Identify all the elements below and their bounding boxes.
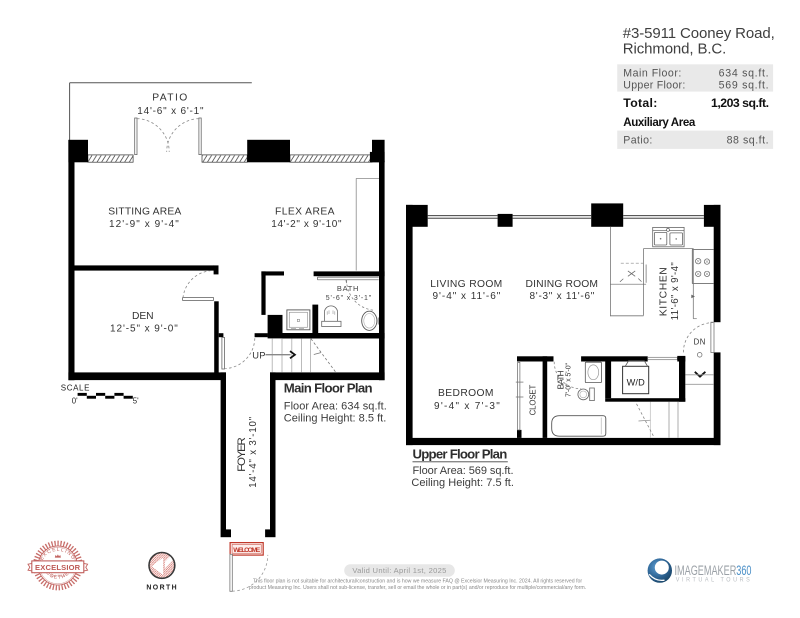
- svg-text:PATIO: PATIO: [152, 93, 188, 104]
- svg-text:SITTING AREA: SITTING AREA: [108, 207, 182, 218]
- svg-text:8'-3" x 11'-6": 8'-3" x 11'-6": [530, 291, 595, 302]
- svg-text:DEN: DEN: [132, 311, 154, 322]
- svg-text:WELCOME: WELCOME: [233, 547, 261, 554]
- svg-text:#3-5911 Cooney Road,: #3-5911 Cooney Road,: [623, 25, 775, 42]
- svg-text:SCALE: SCALE: [61, 384, 90, 393]
- svg-text:14'-2" x 9'-10": 14'-2" x 9'-10": [271, 219, 342, 230]
- svg-text:11'-6" x 9'-4": 11'-6" x 9'-4": [670, 262, 681, 321]
- svg-text:Richmond, B.C.: Richmond, B.C.: [623, 41, 727, 58]
- svg-text:product Measuring Inc. Users s: product Measuring Inc. Users shall not s…: [249, 585, 586, 591]
- svg-text:Floor Area: 634 sq.ft.: Floor Area: 634 sq.ft.: [284, 400, 387, 412]
- svg-text:9'-4" x 7'-3": 9'-4" x 7'-3": [434, 401, 500, 412]
- svg-text:Floor Area: 569 sq.ft.: Floor Area: 569 sq.ft.: [413, 465, 514, 477]
- svg-text:14'-6" x 6'-1": 14'-6" x 6'-1": [137, 106, 204, 117]
- svg-text:KITCHEN: KITCHEN: [659, 266, 670, 316]
- svg-text:1,203 sq.ft.: 1,203 sq.ft.: [711, 96, 769, 110]
- svg-text:Main Floor:: Main Floor:: [623, 67, 681, 79]
- svg-text:14'-4" x 3'-10": 14'-4" x 3'-10": [248, 416, 259, 488]
- svg-text:LIVING ROOM: LIVING ROOM: [430, 279, 503, 290]
- svg-text:DINING ROOM: DINING ROOM: [526, 279, 599, 290]
- svg-text:5': 5': [133, 396, 139, 405]
- svg-text:FLEX AREA: FLEX AREA: [275, 207, 335, 218]
- svg-text:5'-6" x 3'-1": 5'-6" x 3'-1": [326, 295, 372, 302]
- svg-text:0': 0': [72, 397, 78, 406]
- svg-text:Patio:: Patio:: [623, 134, 652, 146]
- svg-text:DN: DN: [694, 338, 706, 347]
- svg-text:Upper Floor:: Upper Floor:: [623, 79, 685, 91]
- svg-text:EXCELSIOR: EXCELSIOR: [35, 563, 81, 572]
- svg-text:NORTH: NORTH: [146, 585, 177, 592]
- svg-text:88 sq.ft.: 88 sq.ft.: [727, 134, 769, 146]
- svg-text:FOYER: FOYER: [236, 436, 248, 472]
- svg-text:BATH: BATH: [556, 370, 566, 390]
- svg-text:VIRTUAL TOURS: VIRTUAL TOURS: [676, 576, 753, 583]
- svg-text:BATH: BATH: [337, 284, 359, 293]
- svg-text:12'-5" x 9'-0": 12'-5" x 9'-0": [110, 324, 178, 335]
- svg-text:CLOSET: CLOSET: [528, 384, 537, 416]
- svg-text:7'-0" x 5'-0": 7'-0" x 5'-0": [565, 362, 572, 397]
- svg-text:EXCELLING: EXCELLING: [39, 547, 77, 562]
- svg-text:Upper Floor Plan: Upper Floor Plan: [413, 446, 508, 461]
- svg-text:UP: UP: [252, 350, 266, 360]
- svg-text:569 sq.ft.: 569 sq.ft.: [719, 79, 769, 91]
- svg-text:Ceiling Height: 7.5 ft.: Ceiling Height: 7.5 ft.: [411, 477, 514, 489]
- svg-text:Main Floor Plan: Main Floor Plan: [284, 380, 373, 395]
- svg-text:Ceiling Height: 8.5 ft.: Ceiling Height: 8.5 ft.: [284, 413, 387, 425]
- svg-text:Valid Until: April 1st, 2025: Valid Until: April 1st, 2025: [352, 566, 446, 575]
- svg-text:Total:: Total:: [623, 96, 657, 110]
- svg-text:· Est. 1918 ·: · Est. 1918 ·: [49, 574, 66, 578]
- svg-text:12'-9" x 9'-4": 12'-9" x 9'-4": [109, 219, 179, 230]
- svg-text:This floor plan is not suitabl: This floor plan is not suitable for arch…: [253, 578, 583, 584]
- svg-text:W/D: W/D: [627, 377, 646, 387]
- svg-text:BEDROOM: BEDROOM: [438, 388, 494, 399]
- svg-text:9'-4" x 11'-6": 9'-4" x 11'-6": [433, 291, 501, 302]
- svg-text:Auxiliary Area: Auxiliary Area: [623, 116, 696, 129]
- svg-text:634 sq.ft.: 634 sq.ft.: [719, 67, 769, 79]
